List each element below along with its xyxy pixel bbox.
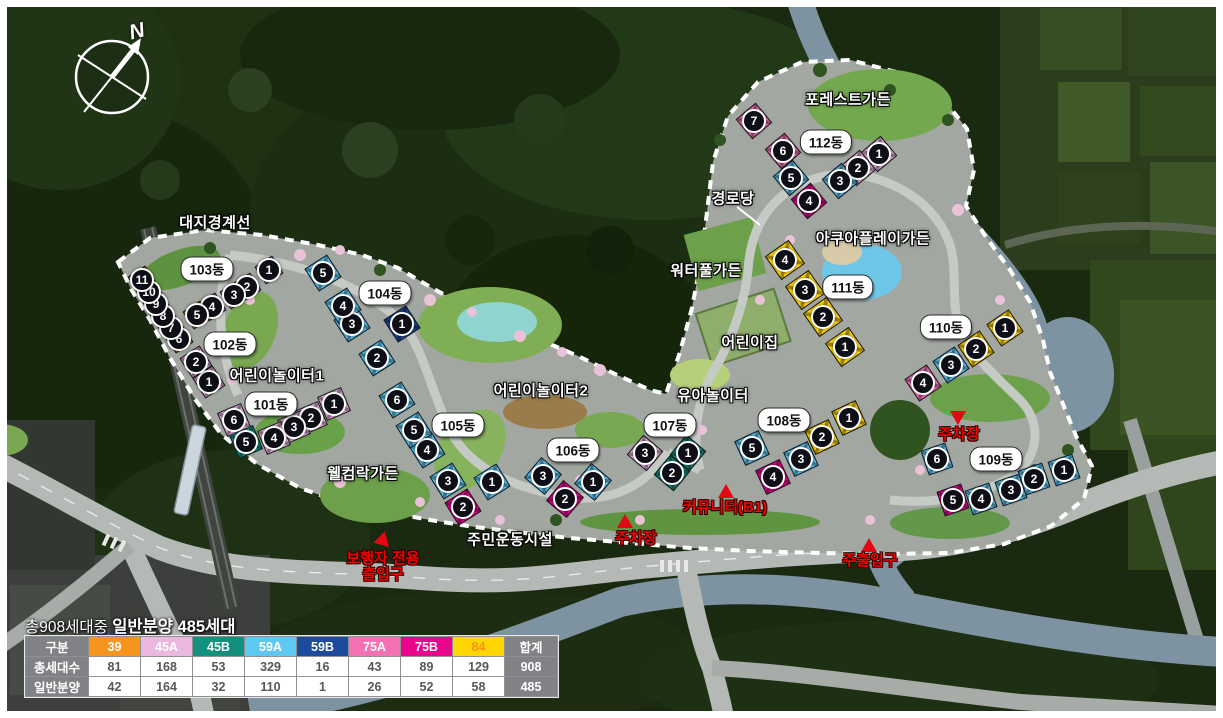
table-header-75A: 75A <box>349 637 401 657</box>
building-103-unit-3-number: 3 <box>222 283 246 307</box>
building-102-unit-2-number: 2 <box>184 350 208 374</box>
building-103-unit-5-number: 5 <box>185 303 209 327</box>
frame-bottom <box>0 711 1223 718</box>
building-label-108: 108동 <box>758 408 811 433</box>
table-row-label: 일반분양 <box>26 677 89 697</box>
table-cell: 329 <box>245 657 297 677</box>
building-101-unit-1-number: 1 <box>322 392 346 416</box>
table-header-59B: 59B <box>297 637 349 657</box>
building-107-unit-3-number: 3 <box>633 441 657 465</box>
building-109-unit-5-number: 5 <box>941 488 965 512</box>
poi-triangle <box>861 538 877 552</box>
frame-right <box>1216 0 1223 718</box>
table-cell: 81 <box>89 657 141 677</box>
poi-triangle <box>617 514 633 528</box>
table-cell: 110 <box>245 677 297 697</box>
table-cell: 58 <box>453 677 505 697</box>
table-header-total: 합계 <box>505 637 558 657</box>
poi-label: 보행자 전용출입구 <box>346 551 419 583</box>
frame-left <box>0 0 7 718</box>
area-label: 어린이놀이터2 <box>494 380 589 401</box>
poi-label: 주출입구 <box>842 553 897 569</box>
building-107-unit-2-number: 2 <box>660 461 684 485</box>
area-label: 워터풀가든 <box>670 260 742 281</box>
building-109-unit-3-number: 3 <box>999 478 1023 502</box>
building-106-unit-2-number: 2 <box>553 487 577 511</box>
table-header-84: 84 <box>453 637 505 657</box>
area-label: 유아놀이터 <box>677 385 749 406</box>
building-108-unit-1-number: 1 <box>837 406 861 430</box>
building-105-unit-1-number: 1 <box>480 470 504 494</box>
table-cell-total: 908 <box>505 657 558 677</box>
site-plan-map: N 1234567891011103동12102동123456101동12345… <box>0 0 1223 718</box>
building-109-unit-2-number: 2 <box>1022 467 1046 491</box>
building-108-unit-3-number: 3 <box>789 447 813 471</box>
building-label-107: 107동 <box>644 413 697 438</box>
table-header-category: 구분 <box>26 637 89 657</box>
building-label-106: 106동 <box>547 438 600 463</box>
area-label: 대지경계선 <box>179 212 251 233</box>
building-label-112: 112동 <box>800 130 852 155</box>
building-101-unit-4-number: 4 <box>262 426 286 450</box>
building-112-unit-7-number: 7 <box>742 109 766 133</box>
building-label-110: 110동 <box>920 315 972 340</box>
building-107-unit-1-number: 1 <box>676 441 700 465</box>
building-label-101: 101동 <box>245 392 298 417</box>
building-112-unit-6-number: 6 <box>771 139 795 163</box>
table-cell: 43 <box>349 657 401 677</box>
table-header-39: 39 <box>89 637 141 657</box>
poi-label: 주차장 <box>615 531 656 547</box>
table-cell: 168 <box>141 657 193 677</box>
table-cell: 89 <box>401 657 453 677</box>
building-111-unit-1-number: 1 <box>833 335 857 359</box>
table-cell: 26 <box>349 677 401 697</box>
building-104-unit-2-number: 2 <box>365 346 389 370</box>
area-label: 웰컴락가든 <box>327 463 399 484</box>
building-103-unit-1-number: 1 <box>257 258 281 282</box>
table-header-59A: 59A <box>245 637 297 657</box>
poi-label: 주차장 <box>938 427 979 443</box>
table-cell: 16 <box>297 657 349 677</box>
building-105-unit-3-number: 3 <box>436 469 460 493</box>
table-row-label: 총세대수 <box>26 657 89 677</box>
area-label: 경로당 <box>712 188 755 209</box>
table-cell: 53 <box>193 657 245 677</box>
building-110-unit-4-number: 4 <box>911 371 935 395</box>
poi-triangle <box>950 411 966 425</box>
table-cell: 42 <box>89 677 141 697</box>
building-111-unit-4-number: 4 <box>773 248 797 272</box>
building-label-104: 104동 <box>359 281 412 306</box>
table-cell: 1 <box>297 677 349 697</box>
area-label: 어린이놀이터1 <box>230 365 325 386</box>
poi-triangle <box>718 484 734 498</box>
building-108-unit-5-number: 5 <box>740 436 764 460</box>
building-109-unit-6-number: 6 <box>925 447 949 471</box>
area-label: 주민운동시설 <box>467 529 553 550</box>
building-104-unit-1-number: 1 <box>390 312 414 336</box>
building-106-unit-3-number: 3 <box>531 464 555 488</box>
table-cell: 32 <box>193 677 245 697</box>
poi-label: 커뮤니티(B1) <box>683 500 767 516</box>
building-104-unit-5-number: 5 <box>311 261 335 285</box>
building-109-unit-1-number: 1 <box>1052 458 1076 482</box>
area-label: 어린이집 <box>721 332 778 353</box>
building-112-unit-4-number: 4 <box>797 189 821 213</box>
building-label-105: 105동 <box>432 413 485 438</box>
building-label-102: 102동 <box>204 332 257 357</box>
building-label-109: 109동 <box>970 447 1023 472</box>
building-110-unit-3-number: 3 <box>939 353 963 377</box>
building-label-103: 103동 <box>181 257 234 282</box>
frame-top <box>0 0 1223 7</box>
table-cell: 164 <box>141 677 193 697</box>
building-109-unit-4-number: 4 <box>969 487 993 511</box>
building-112-unit-5-number: 5 <box>779 166 803 190</box>
area-label: 포레스트가든 <box>805 89 891 110</box>
table-header-45A: 45A <box>141 637 193 657</box>
total-units-caption: 총908세대중 일반분양 485세대 <box>25 613 235 637</box>
building-102-unit-1-number: 1 <box>197 370 221 394</box>
caption-prefix: 총908세대중 <box>25 619 112 636</box>
building-111-unit-3-number: 3 <box>793 278 817 302</box>
building-101-unit-6-number: 6 <box>222 408 246 432</box>
table-cell: 52 <box>401 677 453 697</box>
building-105-unit-5-number: 5 <box>402 418 426 442</box>
building-110-unit-1-number: 1 <box>993 316 1017 340</box>
building-112-unit-1-number: 1 <box>867 142 891 166</box>
building-106-unit-1-number: 1 <box>581 470 605 494</box>
unit-mix-table: 구분3945A45B59A59B75A75B84합계총세대수8116853329… <box>25 636 558 697</box>
table-cell: 129 <box>453 657 505 677</box>
building-105-unit-2-number: 2 <box>451 495 475 519</box>
building-112-unit-3-number: 3 <box>828 169 852 193</box>
table-header-75B: 75B <box>401 637 453 657</box>
table-cell-total: 485 <box>505 677 558 697</box>
building-103-unit-11-number: 11 <box>130 268 154 292</box>
area-label: 아쿠아플레이가든 <box>816 228 930 249</box>
building-105-unit-4-number: 4 <box>415 438 439 462</box>
building-105-unit-6-number: 6 <box>385 388 409 412</box>
table-header-45B: 45B <box>193 637 245 657</box>
building-104-unit-4-number: 4 <box>331 294 355 318</box>
building-108-unit-4-number: 4 <box>761 465 785 489</box>
caption-highlight: 일반분양 485세대 <box>112 618 235 636</box>
building-101-unit-5-number: 5 <box>234 430 258 454</box>
building-110-unit-2-number: 2 <box>964 337 988 361</box>
building-label-111: 111동 <box>822 275 873 300</box>
building-108-unit-2-number: 2 <box>810 425 834 449</box>
building-111-unit-2-number: 2 <box>811 305 835 329</box>
